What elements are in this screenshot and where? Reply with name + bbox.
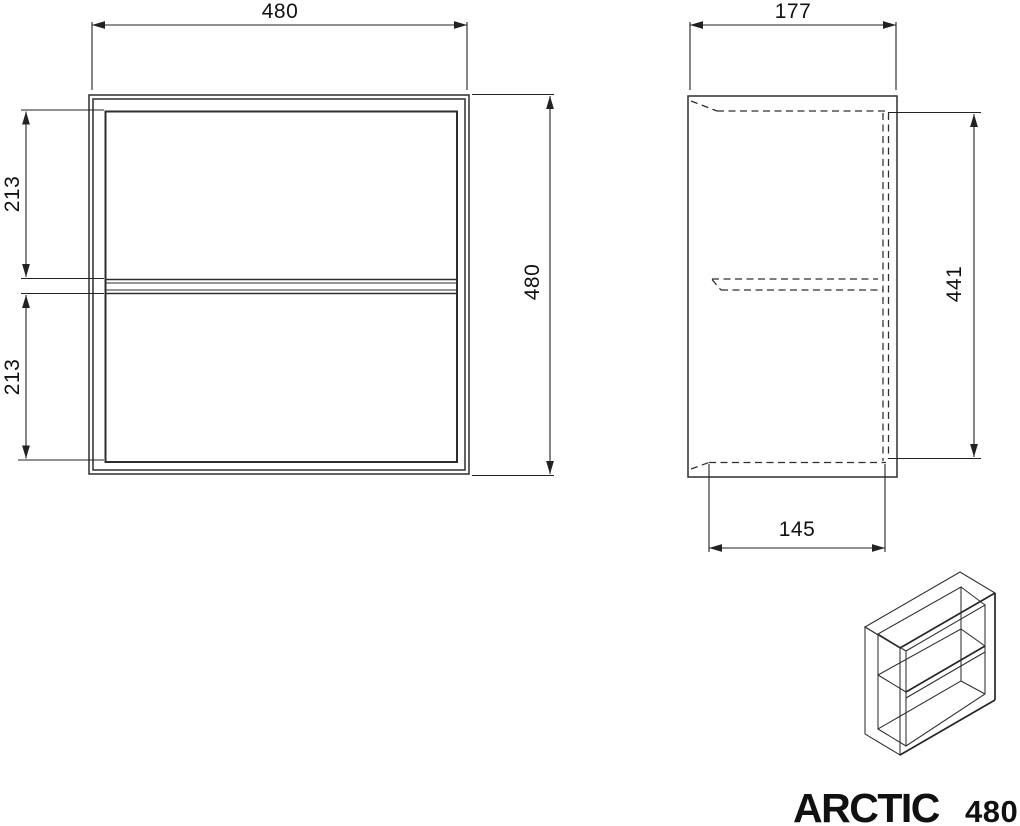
dimension-front-height: 480 (472, 95, 554, 476)
hidden-shelf-chamfer (712, 280, 721, 291)
iso-left-face (865, 627, 900, 755)
side-outline (688, 96, 897, 477)
front-frame-inner-edge (93, 99, 465, 470)
iso-interior-bottom-right-edge (961, 681, 985, 694)
isometric-view (865, 572, 995, 755)
side-view (688, 96, 897, 477)
dim-label-lower-compartment: 213 (1, 359, 24, 396)
technical-drawing-sheet: 480 480 213 213 (0, 0, 1020, 826)
hidden-bottom-chamfer (691, 463, 709, 470)
dim-label-upper-compartment: 213 (1, 176, 24, 213)
drawing-svg: 480 480 213 213 (0, 0, 1020, 826)
iso-interior-bottom-left-edge (878, 729, 906, 746)
dim-label-interior-depth: 145 (779, 518, 816, 541)
front-view-dimensions: 480 480 213 213 (1, 0, 554, 476)
iso-interior-top-left-edge (878, 634, 906, 651)
iso-back-panel (878, 587, 961, 729)
product-title: ARCTIC 480 (793, 785, 1018, 826)
dim-label-front-height: 480 (521, 264, 544, 301)
product-model-number: 480 (965, 794, 1018, 826)
dimension-front-width: 480 (92, 0, 467, 90)
iso-shelf-left-edge (878, 675, 906, 692)
dimension-interior-height: 441 (888, 113, 981, 459)
front-outer-frame (89, 95, 469, 474)
iso-shelf-front-bottom-edge (906, 652, 985, 698)
dim-label-interior-height: 441 (943, 266, 966, 303)
dimension-side-depth: 177 (690, 0, 896, 90)
product-name: ARCTIC (793, 785, 940, 826)
iso-interior-top-right-edge (961, 587, 985, 605)
dim-label-depth: 177 (775, 0, 812, 23)
front-opening (106, 112, 458, 463)
front-view (89, 95, 469, 474)
iso-shelf-right-edge (961, 629, 985, 646)
dim-label-front-width: 480 (262, 0, 299, 23)
side-view-dimensions: 177 441 145 (690, 0, 981, 552)
hidden-top-chamfer (691, 101, 717, 111)
